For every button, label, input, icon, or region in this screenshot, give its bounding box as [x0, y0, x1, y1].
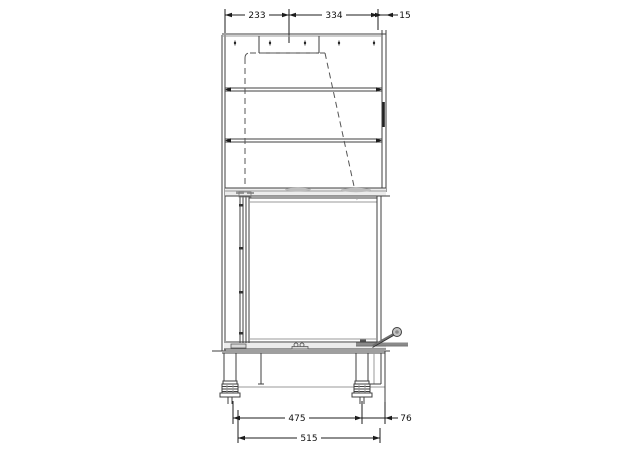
dim-label-233: 233 [248, 11, 265, 21]
plinth-section [212, 351, 390, 404]
fireplace-insert-side-view: 233 334 15 [0, 0, 624, 460]
door-tick [239, 204, 244, 207]
screw-row [234, 41, 375, 46]
dim-label-475: 475 [288, 414, 305, 424]
hood-section [222, 30, 390, 351]
dimension-top-left: 233 [225, 10, 289, 21]
band-clip-detail [236, 191, 244, 194]
door-tick [239, 332, 244, 335]
front-foot-detail [231, 344, 246, 348]
dim-label-515: 515 [300, 434, 317, 444]
lift-door-edge [239, 192, 251, 345]
dimension-top-right: 334 [289, 10, 378, 21]
lower-rail [225, 138, 382, 142]
firebox-section [224, 192, 408, 349]
band-lens-detail [341, 188, 371, 192]
door-handle-knob-center [395, 330, 399, 334]
dim-label-15: 15 [399, 11, 410, 21]
drawing-canvas: 233 334 15 [0, 0, 624, 460]
dimension-rear-offset: 76 [362, 414, 412, 424]
upper-rail [225, 87, 382, 91]
dim-label-76: 76 [400, 414, 412, 424]
rear-bracket-box [368, 353, 381, 384]
door-tick [239, 291, 244, 294]
dimension-leg-spacing: 475 [233, 413, 362, 424]
right-adjustable-foot [352, 381, 372, 404]
screw-icon [338, 41, 340, 46]
band-lens-detail [285, 188, 311, 192]
screw-icon [234, 41, 236, 46]
top-dimensions: 233 334 15 [225, 9, 411, 43]
screw-icon [269, 41, 271, 46]
screw-icon [373, 41, 375, 46]
flue-dashed-outline [245, 53, 357, 200]
rear-wall-hinge-mark [382, 102, 384, 127]
middle-strut [258, 353, 264, 384]
dim-label-334: 334 [325, 11, 342, 21]
latch-mark [360, 340, 366, 342]
handle-assembly [356, 328, 408, 348]
dimension-total-depth: 515 [238, 433, 380, 444]
door-tick [239, 247, 244, 250]
screw-icon [304, 41, 306, 46]
dimension-top-offset: 15 [375, 11, 411, 21]
bottom-dimensions: 475 76 515 [233, 401, 412, 444]
left-adjustable-foot [220, 381, 240, 404]
